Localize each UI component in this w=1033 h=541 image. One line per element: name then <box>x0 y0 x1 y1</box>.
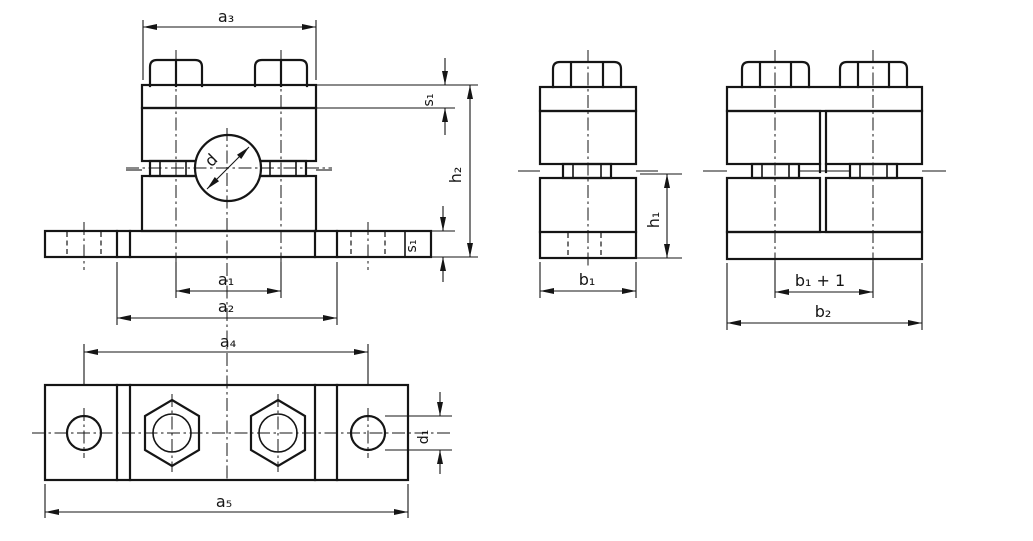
bolt-head <box>553 62 621 87</box>
dim-label-a3: a₃ <box>218 7 234 26</box>
dimension-s1-bottom: s₁ <box>404 206 455 282</box>
dimension-b1-plus-1: b₁ + 1 <box>775 262 873 298</box>
drawing-sheet: d a₃ s₁ h₂ s₁ <box>0 0 1033 541</box>
clamp-lower-half <box>727 178 820 232</box>
dim-label-b2: b₂ <box>815 302 832 321</box>
clamp-upper-half <box>826 111 922 164</box>
dim-label-a5: a₅ <box>216 492 232 511</box>
clamp-lower-half <box>826 178 922 232</box>
pipe-clamp-technical-drawing: d a₃ s₁ h₂ s₁ <box>0 0 1033 541</box>
joint-lug <box>563 164 611 178</box>
dimension-b1: b₁ <box>540 262 636 298</box>
dim-label-h2: h₂ <box>446 167 465 184</box>
dimension-h1: h₁ <box>636 174 682 258</box>
dim-label-h1: h₁ <box>644 212 663 229</box>
dim-label-a4: a₄ <box>220 332 236 351</box>
side-view-double: b₁ + 1 b₂ <box>703 50 946 330</box>
dim-label-a2: a₂ <box>218 297 234 316</box>
dimension-a5: a₅ <box>45 484 408 518</box>
plan-view: d₁ a₅ <box>32 385 452 518</box>
base-band <box>727 232 922 259</box>
dimension-a4: a₄ <box>84 332 368 386</box>
clamp-upper-half <box>727 111 820 164</box>
dim-label-a1: a₁ <box>218 270 234 289</box>
dimension-a1: a₁ <box>176 262 281 298</box>
dim-label-b1: b₁ <box>579 270 596 289</box>
strap-plate <box>727 87 922 111</box>
side-view-single: b₁ h₁ <box>518 50 682 298</box>
dim-label-d1: d₁ <box>416 430 432 445</box>
base-plate <box>45 231 431 257</box>
dim-label-s1-top: s₁ <box>421 94 437 107</box>
strap-plate <box>142 85 316 108</box>
dim-label-b1-plus-1: b₁ + 1 <box>795 271 845 290</box>
dimension-a3: a₃ <box>143 7 316 80</box>
dim-label-s1-bottom: s₁ <box>404 240 420 253</box>
dimension-s1-top: s₁ <box>316 58 478 135</box>
